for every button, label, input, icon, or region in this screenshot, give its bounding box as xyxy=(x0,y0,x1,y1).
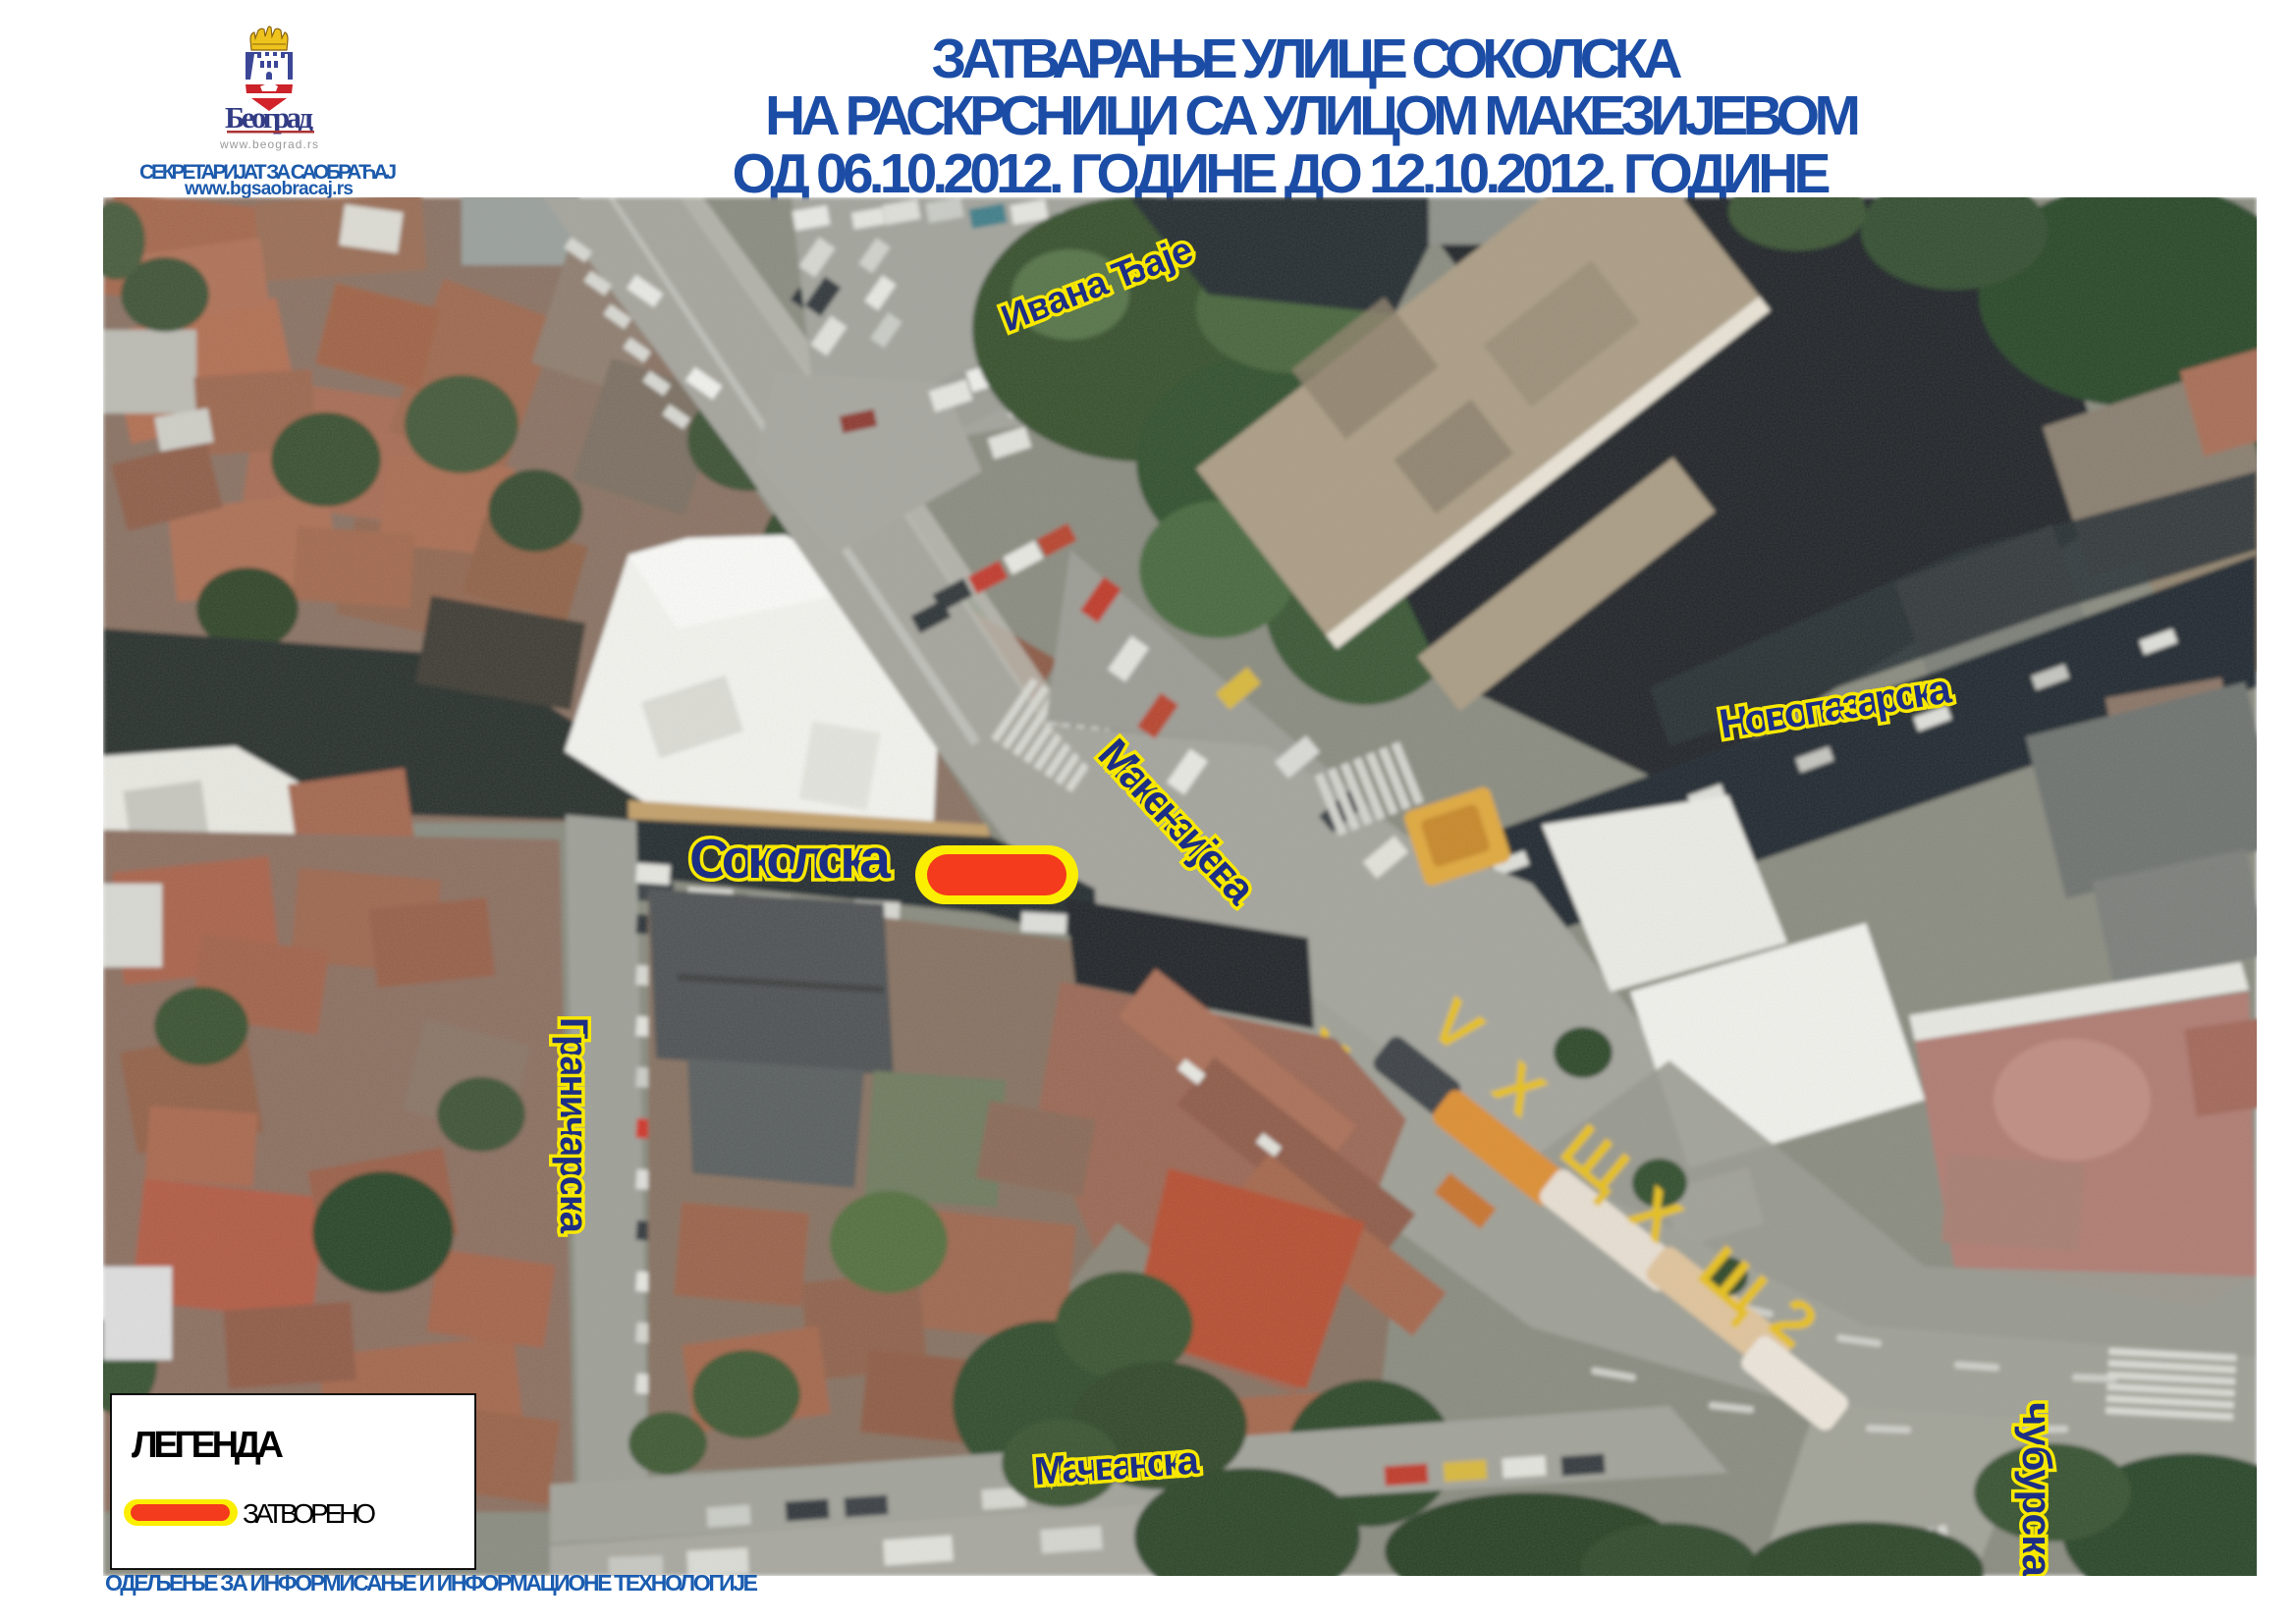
svg-text:ОД 06.10.2012. ГОДИНЕ ДО 12.10: ОД 06.10.2012. ГОДИНЕ ДО 12.10.2012. ГОД… xyxy=(733,142,1831,205)
svg-text:ЛЕГЕНДА: ЛЕГЕНДА xyxy=(132,1425,284,1466)
svg-text:www.beograd.rs: www.beograd.rs xyxy=(219,137,318,151)
svg-text:www.bgsaobracaj.rs: www.bgsaobracaj.rs xyxy=(184,179,354,199)
svg-text:НА РАСКРСНИЦИ СА УЛИЦОМ МАКЕЗИ: НА РАСКРСНИЦИ СА УЛИЦОМ МАКЕЗИЈЕВОМ xyxy=(765,84,1861,147)
svg-text:ЗАТВОРЕНО: ЗАТВОРЕНО xyxy=(243,1498,376,1529)
svg-text:Соколска: Соколска xyxy=(689,828,892,891)
svg-text:Београд: Београд xyxy=(225,100,313,135)
svg-text:ОДЕЉЕЊЕ ЗА ИНФОРМИСАЊЕ И ИНФОР: ОДЕЉЕЊЕ ЗА ИНФОРМИСАЊЕ И ИНФОРМАЦИОНЕ ТЕ… xyxy=(105,1570,758,1596)
svg-text:Граничарска: Граничарска xyxy=(552,1017,595,1234)
svg-text:чубурска: чубурска xyxy=(2014,1402,2060,1578)
svg-text:ЗАТВАРАЊЕ УЛИЦЕ СОКОЛСКА: ЗАТВАРАЊЕ УЛИЦЕ СОКОЛСКА xyxy=(932,27,1683,90)
